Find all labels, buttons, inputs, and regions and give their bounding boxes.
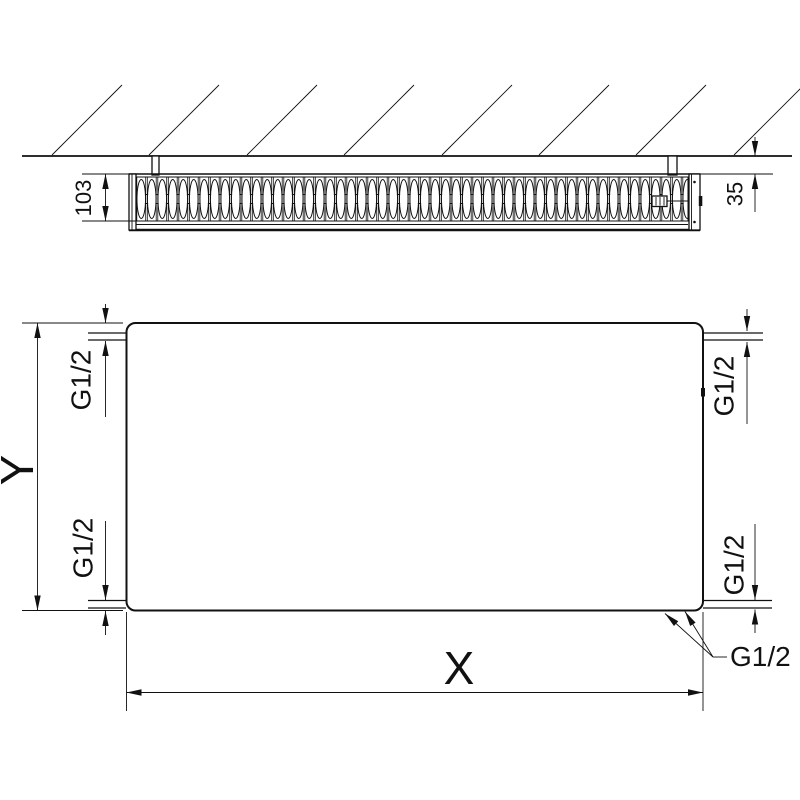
hatch-line	[636, 85, 706, 155]
end-cap-left-body	[129, 174, 136, 230]
dimension-connection-top-right: G1/2	[709, 309, 748, 424]
leader-arrow	[685, 612, 713, 658]
depth-dimension-label: 103	[71, 180, 96, 217]
connection-stub-bottom-left	[88, 601, 126, 609]
dimension-height-Y: Y	[0, 323, 123, 611]
dimension-connection-bottom-left: G1/2	[68, 518, 106, 635]
valve-tailpiece	[699, 196, 703, 206]
height-dimension-label: Y	[0, 455, 43, 486]
front-view: Y X G1/2 G1/2 G1/2 G1/2	[0, 304, 791, 711]
hatch-line	[539, 85, 609, 155]
top-view: 103 35	[22, 85, 800, 230]
radiator-top-view	[129, 174, 702, 230]
connection-label-leader: G1/2	[730, 641, 791, 672]
vent-mark	[701, 388, 705, 397]
leader-arrow	[665, 614, 713, 658]
hatch-line	[52, 85, 122, 155]
dimension-wall-distance-35: 35	[700, 137, 773, 212]
connection-stub-top-right	[703, 333, 763, 340]
rivet-dot	[693, 221, 696, 224]
connection-label-bottom-left: G1/2	[68, 518, 99, 579]
width-dimension-label: X	[444, 642, 475, 694]
connection-stub-top-left	[88, 333, 126, 340]
dimension-connection-bottom-right: G1/2	[719, 524, 756, 633]
convector-fins	[136, 177, 688, 221]
wall-distance-dimension-label: 35	[723, 182, 748, 206]
hatch-line	[247, 85, 317, 155]
thermostat-body	[652, 196, 667, 207]
hatch-line	[734, 85, 800, 155]
connection-label-bottom-right: G1/2	[719, 535, 750, 596]
hatch-line	[442, 85, 512, 155]
dimension-connection-top-left: G1/2	[66, 304, 106, 417]
dimension-width-X: X	[127, 612, 704, 711]
dimension-depth-103: 103	[71, 174, 136, 221]
connection-label-top-right: G1/2	[709, 356, 740, 417]
end-cap-left	[129, 174, 136, 230]
mounting-bracket-right	[668, 156, 677, 175]
connection-label-top-left: G1/2	[66, 350, 97, 411]
radiator-front-panel	[127, 323, 704, 611]
mounting-bracket-left	[152, 156, 159, 175]
technical-drawing: 103 35	[0, 0, 800, 800]
hatch-line	[344, 85, 414, 155]
wall-hatching	[52, 85, 800, 155]
leader-bottom-connections: G1/2	[665, 612, 791, 673]
end-cap-right	[689, 174, 702, 230]
connection-stub-bottom-right	[703, 601, 772, 609]
rivet-dot	[693, 181, 696, 184]
hatch-line	[149, 85, 219, 155]
